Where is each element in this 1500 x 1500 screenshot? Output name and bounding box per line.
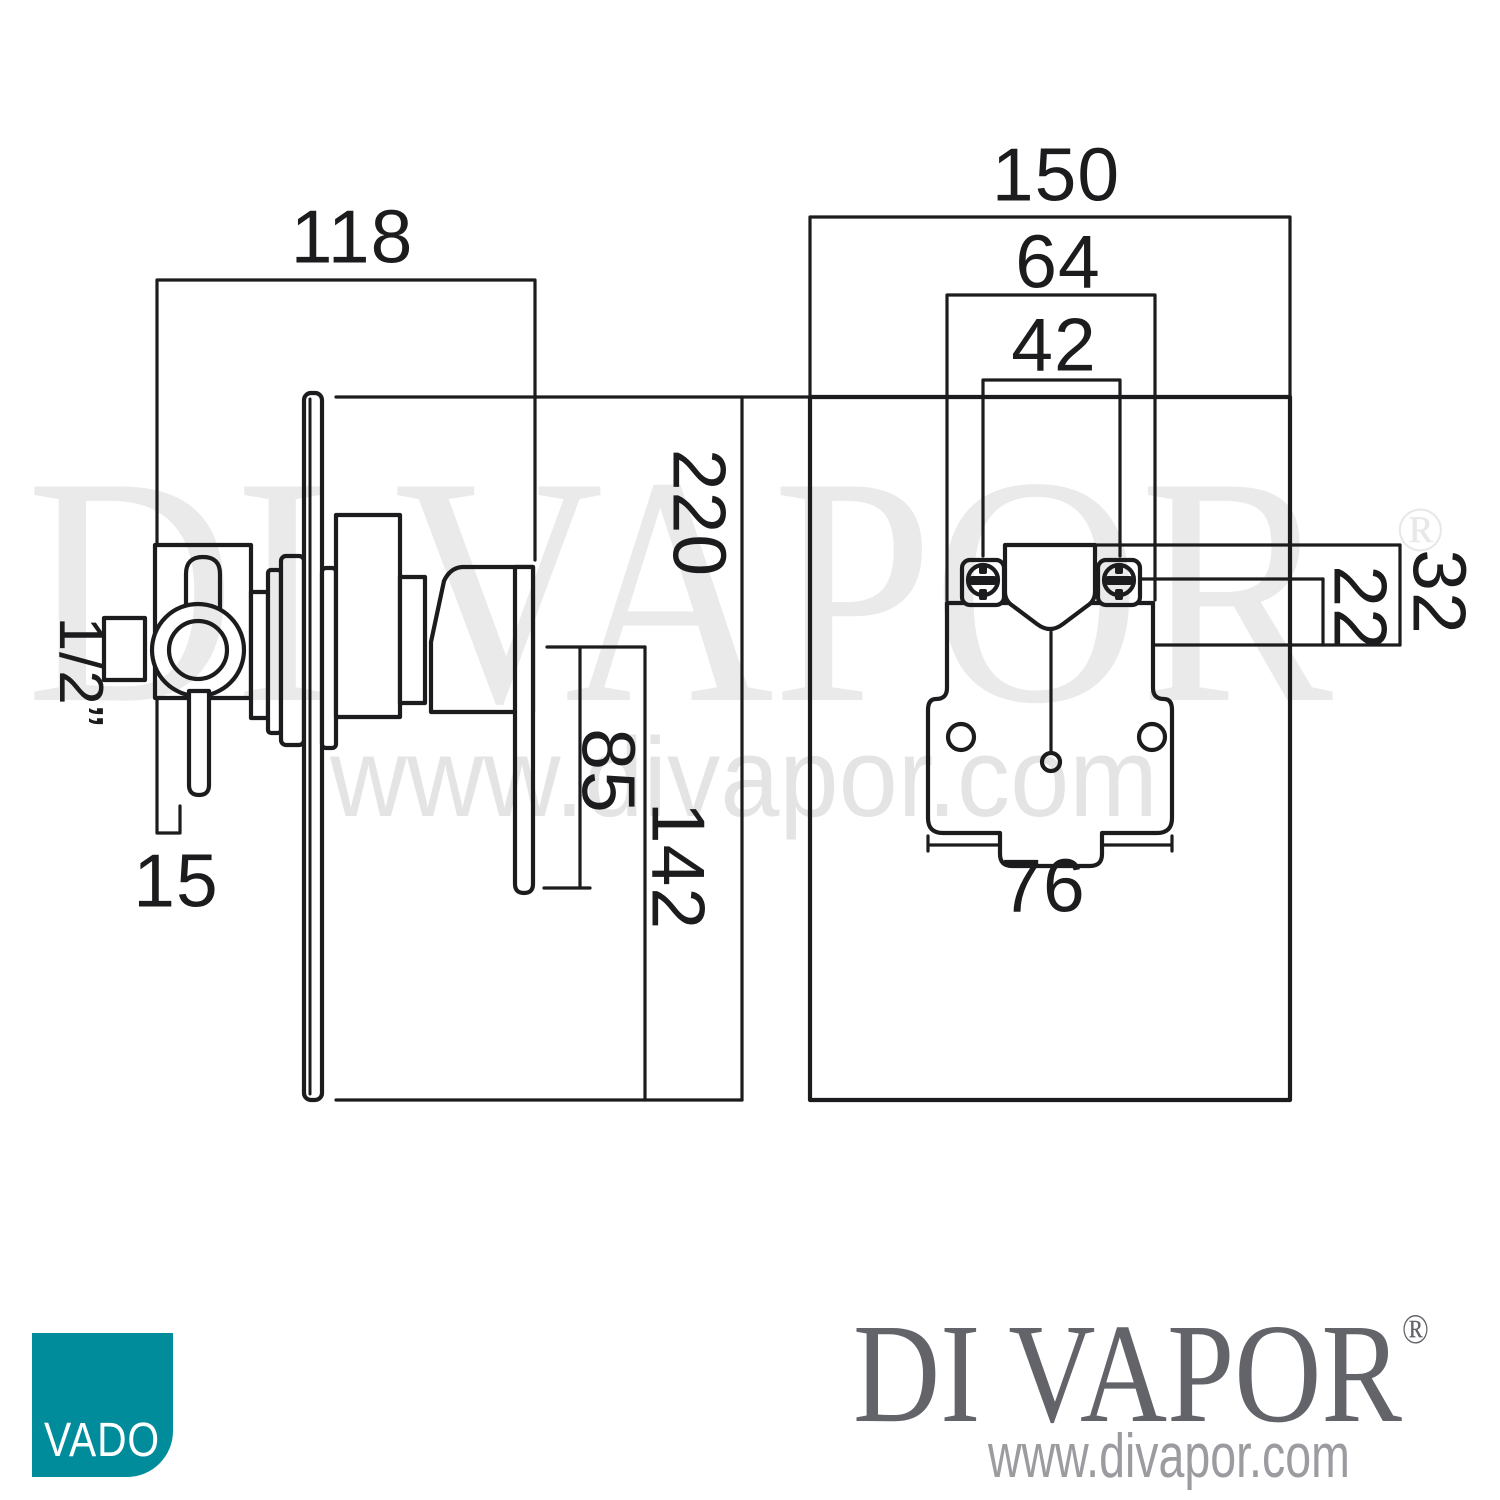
- screw-tab: [979, 563, 987, 574]
- dim-line-15: [157, 698, 180, 833]
- dim-label-inlet-half-inch: 1/2”: [49, 617, 111, 728]
- dim-label-height-220: 220: [662, 449, 737, 577]
- dim-label-centres-42: 42: [1011, 308, 1096, 383]
- wall-plate: [304, 393, 322, 1100]
- left-view-side-elevation: [104, 280, 810, 1100]
- stop-lever: [189, 691, 209, 795]
- dim-label-bracket-76: 76: [1000, 849, 1085, 924]
- vado-logo-label: VADO: [44, 1417, 160, 1465]
- screw-tab: [1115, 563, 1123, 574]
- screw-slot-left: [969, 576, 997, 585]
- technical-drawing-page: 118 220 85 142 15 1/2” 150 64 42 22 32 7…: [0, 0, 1500, 1500]
- dim-label-handle-85: 85: [571, 728, 646, 813]
- dim-line-42: [983, 380, 1120, 556]
- collar-ring-outer: [281, 556, 304, 745]
- dim-label-offset-15: 15: [133, 844, 218, 919]
- vado-logo: VADO: [32, 1333, 173, 1477]
- valve-front-assembly: [928, 545, 1172, 866]
- screw-tab: [979, 589, 987, 600]
- screw-slot-right: [1105, 576, 1133, 585]
- cartridge-bonnet: [336, 515, 400, 717]
- right-view-front-elevation: [810, 217, 1400, 1100]
- fixing-hole-left: [948, 724, 974, 750]
- dim-label-width-150: 150: [992, 138, 1120, 213]
- dim-label-depth-32: 32: [1402, 549, 1477, 634]
- bonnet-adapter: [400, 577, 425, 703]
- dim-label-depth-22: 22: [1323, 565, 1398, 650]
- dim-label-span-64: 64: [1015, 225, 1100, 300]
- divapor-registered-icon: ®: [1402, 1307, 1429, 1353]
- dim-label-drop-142: 142: [641, 802, 716, 930]
- dimension-drawing: [0, 0, 1500, 1500]
- fixing-hole-right: [1139, 724, 1165, 750]
- left-view-plate-and-handle: [304, 393, 533, 1100]
- divapor-url-text: www.divapor.com: [988, 1426, 1350, 1488]
- left-view-valve-body: [104, 545, 304, 795]
- inlet-port-inner: [169, 621, 227, 679]
- body-step: [251, 592, 268, 718]
- screw-tab: [1115, 589, 1123, 600]
- centre-hole: [1042, 753, 1060, 771]
- handle-lever: [515, 567, 533, 893]
- dim-label-width-118: 118: [291, 200, 414, 275]
